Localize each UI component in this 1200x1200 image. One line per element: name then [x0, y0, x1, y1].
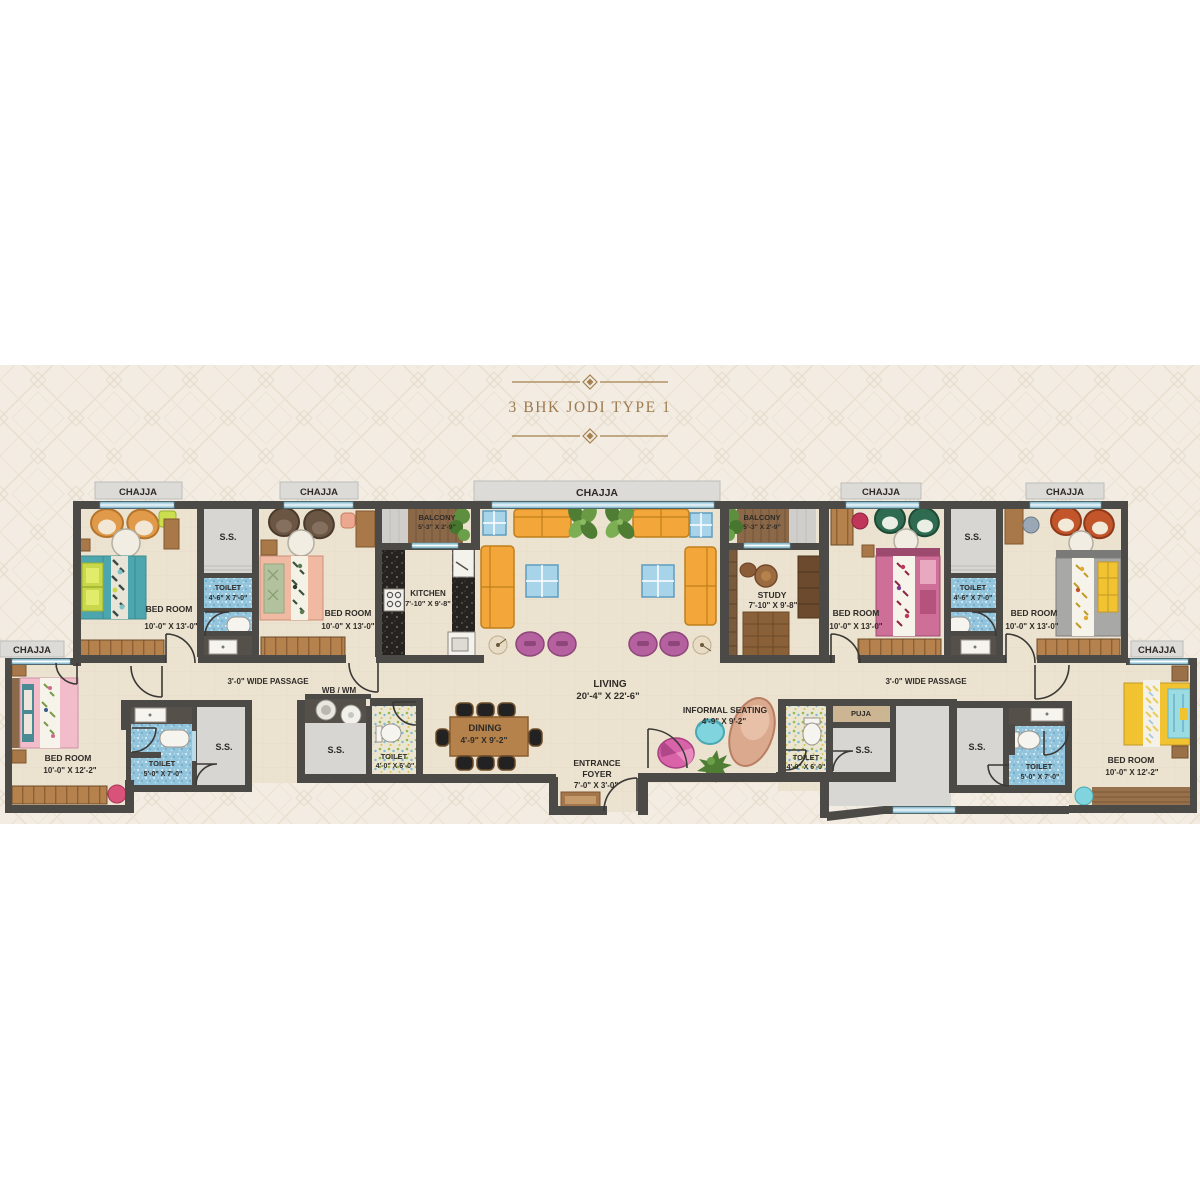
svg-text:TOILET: TOILET — [215, 583, 242, 592]
svg-text:S.S.: S.S. — [215, 742, 232, 752]
svg-text:4'-9" X 9'-2": 4'-9" X 9'-2" — [702, 717, 747, 726]
svg-text:BED ROOM: BED ROOM — [833, 608, 880, 618]
svg-text:10'-0" X 12'-2": 10'-0" X 12'-2" — [43, 766, 96, 775]
svg-text:7'-0" X 3'-0": 7'-0" X 3'-0" — [574, 781, 619, 790]
svg-text:ENTRANCE: ENTRANCE — [573, 758, 621, 768]
svg-text:DINING: DINING — [468, 723, 501, 734]
svg-text:10'-0" X 12'-2": 10'-0" X 12'-2" — [1105, 768, 1158, 777]
svg-text:S.S.: S.S. — [855, 745, 872, 755]
svg-text:TOILET: TOILET — [1026, 762, 1053, 771]
svg-text:4'-0" X 6'-0": 4'-0" X 6'-0" — [376, 763, 415, 770]
svg-text:CHAJJA: CHAJJA — [1138, 645, 1176, 656]
svg-text:5'-3" X 2'-9": 5'-3" X 2'-9" — [418, 524, 456, 531]
svg-text:7'-10" X 9'-8": 7'-10" X 9'-8" — [749, 601, 798, 610]
svg-text:10'-0" X 13'-0": 10'-0" X 13'-0" — [1005, 622, 1058, 631]
svg-text:BED ROOM: BED ROOM — [45, 753, 92, 763]
svg-text:CHAJJA: CHAJJA — [119, 487, 157, 498]
svg-text:FOYER: FOYER — [582, 769, 611, 779]
svg-text:TOILET: TOILET — [149, 759, 176, 768]
svg-text:BALCONY: BALCONY — [743, 513, 780, 522]
svg-text:KITCHEN: KITCHEN — [410, 589, 446, 598]
svg-text:PUJA: PUJA — [851, 709, 872, 718]
svg-text:CHAJJA: CHAJJA — [13, 645, 51, 656]
svg-text:5'-3" X 2'-9": 5'-3" X 2'-9" — [743, 524, 781, 531]
svg-text:4'-9" X 9'-2": 4'-9" X 9'-2" — [460, 735, 507, 745]
svg-text:BED ROOM: BED ROOM — [1108, 755, 1155, 765]
svg-text:S.S.: S.S. — [219, 532, 236, 542]
svg-text:WB / WM: WB / WM — [322, 686, 357, 695]
svg-text:3'-0" WIDE PASSAGE: 3'-0" WIDE PASSAGE — [885, 677, 967, 686]
svg-text:TOILET: TOILET — [381, 752, 408, 761]
svg-text:TOILET: TOILET — [960, 583, 987, 592]
svg-text:10'-0" X 13'-0": 10'-0" X 13'-0" — [321, 622, 374, 631]
svg-text:3 BHK JODI TYPE 1: 3 BHK JODI TYPE 1 — [509, 399, 672, 416]
svg-text:CHAJJA: CHAJJA — [300, 487, 338, 498]
svg-text:20'-4" X 22'-6": 20'-4" X 22'-6" — [576, 691, 639, 702]
svg-text:INFORMAL SEATING: INFORMAL SEATING — [683, 705, 768, 715]
svg-text:BALCONY: BALCONY — [418, 513, 455, 522]
svg-text:4'-0" X 6'-0": 4'-0" X 6'-0" — [787, 764, 826, 771]
svg-text:CHAJJA: CHAJJA — [576, 487, 618, 499]
svg-text:10'-0" X 13'-0": 10'-0" X 13'-0" — [144, 622, 197, 631]
svg-text:BED ROOM: BED ROOM — [325, 608, 372, 618]
svg-text:5'-0" X 7'-0": 5'-0" X 7'-0" — [144, 771, 183, 778]
svg-text:BED ROOM: BED ROOM — [1011, 608, 1058, 618]
svg-text:STUDY: STUDY — [758, 590, 787, 600]
svg-text:7'-10" X 9'-8": 7'-10" X 9'-8" — [405, 599, 451, 608]
svg-text:S.S.: S.S. — [968, 742, 985, 752]
svg-text:5'-0" X 7'-0": 5'-0" X 7'-0" — [1021, 774, 1060, 781]
svg-text:BED ROOM: BED ROOM — [146, 604, 193, 614]
svg-text:LIVING: LIVING — [593, 679, 627, 690]
svg-text:S.S.: S.S. — [964, 532, 981, 542]
svg-text:CHAJJA: CHAJJA — [862, 487, 900, 498]
svg-text:TOILET: TOILET — [793, 753, 820, 762]
svg-text:CHAJJA: CHAJJA — [1046, 487, 1084, 498]
svg-text:S.S.: S.S. — [327, 745, 344, 755]
svg-text:10'-0" X 13'-0": 10'-0" X 13'-0" — [829, 622, 882, 631]
svg-text:4'-6" X 7'-0": 4'-6" X 7'-0" — [954, 595, 993, 602]
svg-text:3'-0" WIDE PASSAGE: 3'-0" WIDE PASSAGE — [227, 677, 309, 686]
svg-text:4'-6" X 7'-0": 4'-6" X 7'-0" — [209, 595, 248, 602]
